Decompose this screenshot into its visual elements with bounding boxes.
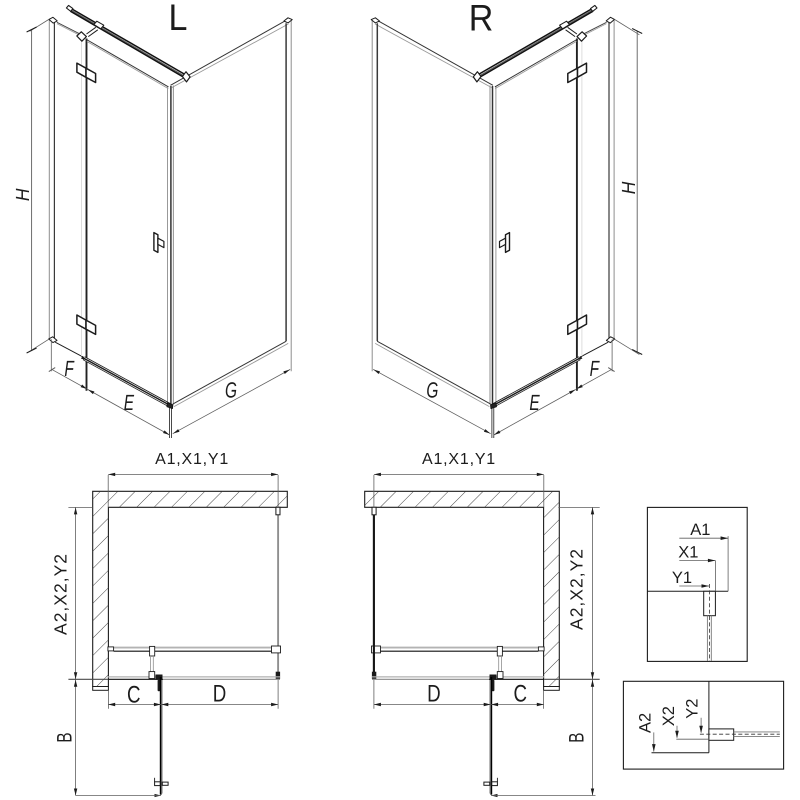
svg-text:B: B <box>54 732 77 742</box>
svg-text:D: D <box>427 681 441 708</box>
svg-text:A2: A2 <box>636 713 654 733</box>
svg-text:A2,X2,Y2: A2,X2,Y2 <box>51 553 71 635</box>
svg-text:E: E <box>529 390 540 415</box>
svg-text:C: C <box>514 681 528 708</box>
svg-text:G: G <box>225 378 237 403</box>
svg-text:A1,X1,Y1: A1,X1,Y1 <box>422 451 496 468</box>
svg-text:G: G <box>426 378 438 403</box>
svg-text:H: H <box>13 188 34 201</box>
svg-text:H: H <box>619 181 640 194</box>
svg-text:L: L <box>169 0 188 38</box>
svg-text:D: D <box>213 681 227 708</box>
svg-text:Y1: Y1 <box>672 569 692 587</box>
svg-text:A2,X2,Y2: A2,X2,Y2 <box>567 548 587 630</box>
svg-text:B: B <box>566 733 589 743</box>
svg-text:A1: A1 <box>690 521 710 539</box>
svg-text:E: E <box>124 390 135 415</box>
svg-text:F: F <box>590 356 601 381</box>
svg-text:R: R <box>469 0 494 39</box>
svg-text:A1,X1,Y1: A1,X1,Y1 <box>155 451 229 468</box>
svg-text:X2: X2 <box>660 706 678 726</box>
svg-text:X1: X1 <box>678 543 698 561</box>
svg-text:F: F <box>64 356 75 381</box>
svg-text:Y2: Y2 <box>684 699 702 719</box>
svg-text:C: C <box>127 681 141 708</box>
